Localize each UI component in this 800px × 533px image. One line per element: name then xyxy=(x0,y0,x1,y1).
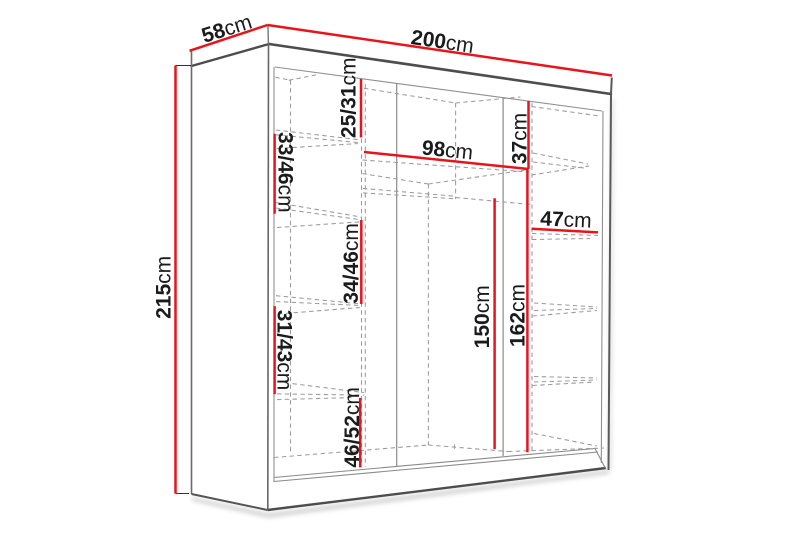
svg-text:162cm: 162cm xyxy=(506,284,529,347)
svg-text:25/31cm: 25/31cm xyxy=(337,58,360,139)
svg-text:200cm: 200cm xyxy=(410,26,476,58)
svg-text:31/43cm: 31/43cm xyxy=(273,310,296,391)
svg-text:33/46cm: 33/46cm xyxy=(274,132,297,213)
svg-text:58cm: 58cm xyxy=(199,10,255,47)
svg-text:215cm: 215cm xyxy=(152,256,175,319)
svg-text:46/52cm: 46/52cm xyxy=(341,387,364,468)
svg-text:34/46cm: 34/46cm xyxy=(340,223,363,304)
svg-text:47cm: 47cm xyxy=(540,207,592,232)
svg-text:37cm: 37cm xyxy=(508,113,531,164)
svg-text:150cm: 150cm xyxy=(471,285,494,348)
